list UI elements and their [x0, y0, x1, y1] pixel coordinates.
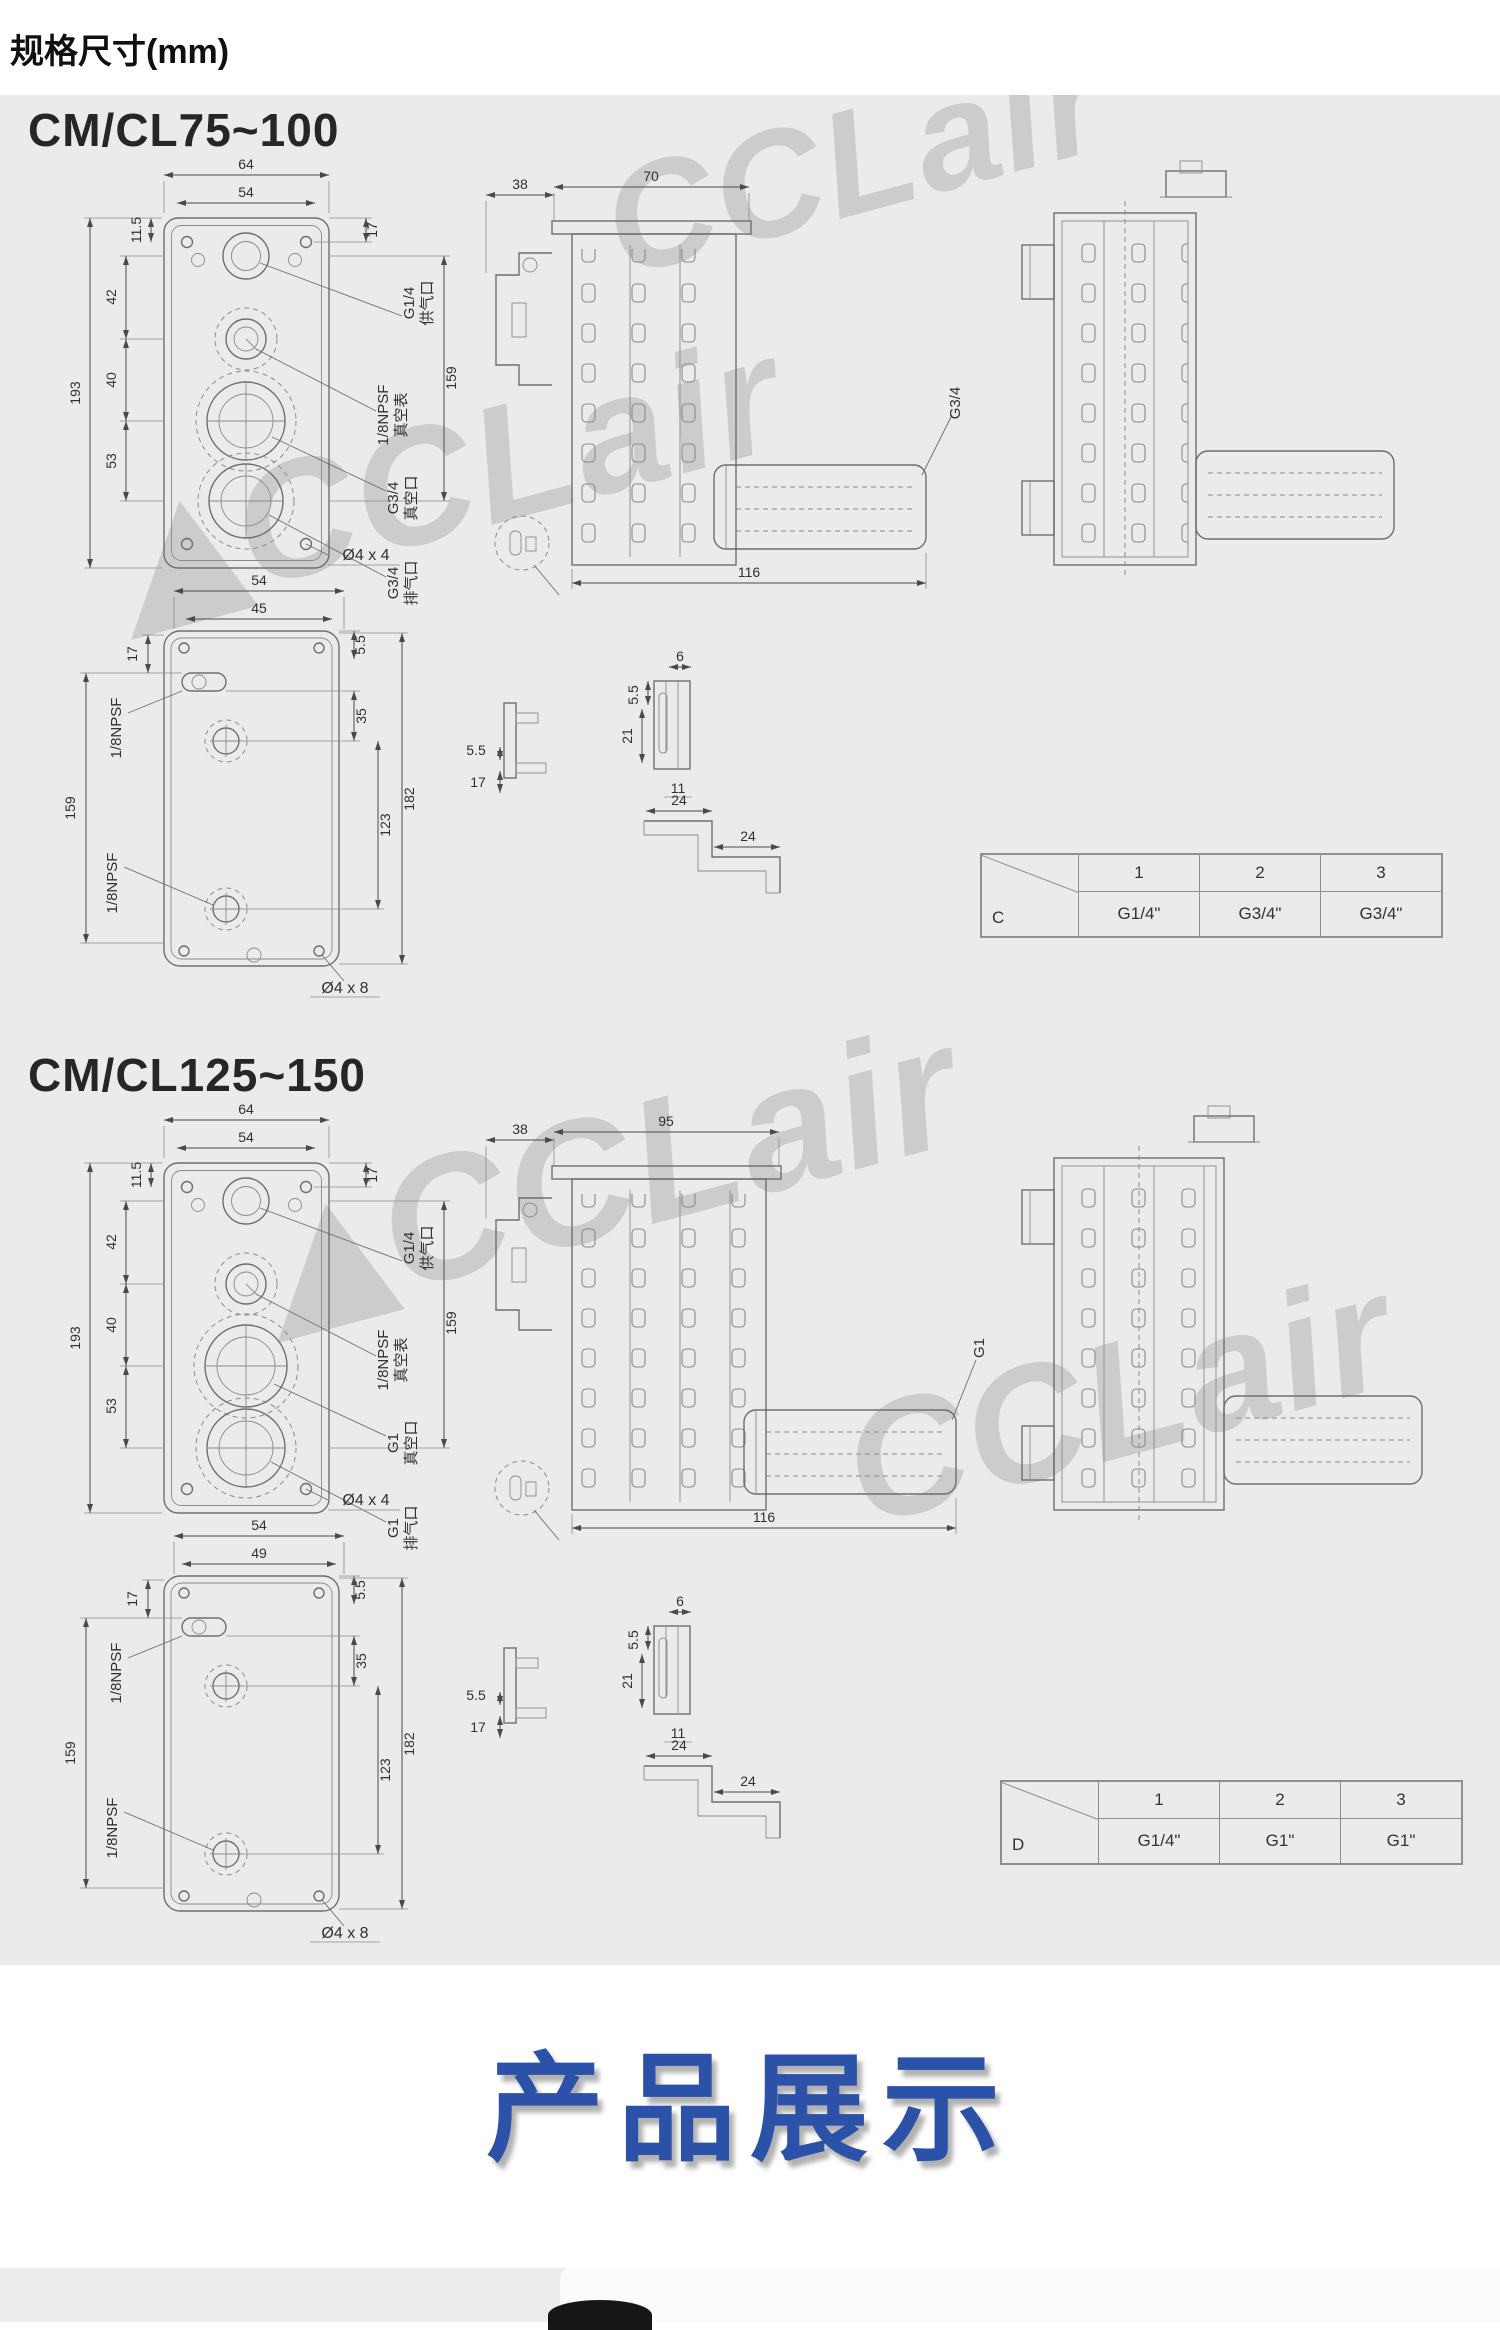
dim-label: 6 [676, 1593, 684, 1609]
port-label: 供气口 [419, 280, 436, 325]
dim-label: 17 [364, 222, 380, 238]
dim-label: 70 [643, 168, 659, 184]
side-view: 38 70 116 G3/4 [486, 168, 964, 595]
dim-label: 11.5 [128, 217, 144, 243]
dim-label: 35 [353, 708, 369, 724]
dim-label: 11.5 [128, 1162, 144, 1188]
dim-label: 159 [443, 1311, 459, 1335]
detail-profiles: 5.5 17 6 5.5 21 11 24 24 [466, 1593, 780, 1838]
dim-label: 193 [67, 1326, 83, 1350]
dim-label: 64 [238, 1101, 254, 1117]
port-label: 1/8NPSF [104, 1798, 121, 1859]
dim-label: 21 [619, 1673, 635, 1689]
dim-label: 193 [67, 381, 83, 405]
dim-label: 24 [740, 1773, 756, 1789]
section-heading: CM/CL125~150 [0, 1040, 1500, 1102]
muffler-port-label: G1 [971, 1338, 988, 1358]
port-label: 排气口 [403, 560, 420, 605]
dim-label: 24 [671, 1737, 687, 1753]
port-label: 1/8NPSF [375, 1330, 392, 1391]
port-label: 1/8NPSF [104, 853, 121, 914]
dim-label: 49 [251, 1545, 267, 1561]
table-col-header: 3 [1341, 1781, 1463, 1819]
dim-label: 21 [619, 728, 635, 744]
port-size-table: D 1 2 3 G1/4" G1" G1" [1000, 1780, 1463, 1865]
dim-label: 159 [62, 1741, 78, 1765]
holes-label: Ø4 x 8 [321, 980, 368, 997]
table-col-header: 3 [1321, 854, 1443, 892]
dim-label: 182 [401, 1732, 417, 1756]
section-cm-cl-75-100: CM/CL75~100 [0, 95, 1500, 1040]
port-label: G3/4 [385, 567, 402, 600]
dim-label: 38 [512, 1121, 528, 1137]
table-value: G1/4" [1079, 892, 1200, 938]
product-showcase-section: 产品展示 [0, 1965, 1500, 2265]
dim-label: 5.5 [466, 742, 486, 758]
dim-label: 95 [658, 1113, 674, 1129]
table-value: G3/4" [1200, 892, 1321, 938]
table-col-header: 1 [1099, 1781, 1220, 1819]
port-size-table: C 1 2 3 G1/4" G3/4" G3/4" [980, 853, 1443, 938]
dim-label: 17 [470, 1719, 486, 1735]
port-label: 真空表 [392, 392, 410, 437]
table-value: G1" [1220, 1819, 1341, 1865]
side-view: 38 95 116 G1 [486, 1113, 988, 1540]
dim-label: 123 [377, 813, 393, 837]
muffler-port-label: G3/4 [947, 387, 964, 420]
dim-label: 54 [238, 184, 254, 200]
dim-label: 182 [401, 787, 417, 811]
holes-label: Ø4 x 8 [321, 1925, 368, 1942]
port-label: G1/4 [401, 1232, 418, 1265]
product-photo-strip [0, 2268, 1500, 2322]
table-corner-label: C [992, 908, 1004, 928]
port-label: G1 [385, 1518, 402, 1538]
front-view: 64 54 11.5 42 40 53 193 17 159 G1/4 供气口 … [67, 156, 459, 606]
bottom-view: 54 45 17 159 5.5 35 123 182 1/8NPSF 1/8N… [62, 572, 417, 997]
dim-label: 54 [251, 572, 267, 588]
port-label: 真空表 [392, 1337, 410, 1382]
port-label: 1/8NPSF [108, 1643, 125, 1704]
dim-label: 42 [103, 289, 119, 305]
port-label: 真空口 [402, 475, 420, 520]
dim-label: 42 [103, 1234, 119, 1250]
dim-label: 116 [753, 1509, 776, 1525]
dim-label: 38 [512, 176, 528, 192]
dim-label: 5.5 [352, 1580, 368, 1600]
table-value: G1" [1341, 1819, 1463, 1865]
table-col-header: 2 [1220, 1781, 1341, 1819]
dim-label: 24 [671, 792, 687, 808]
table-corner-label: D [1012, 1835, 1024, 1855]
dim-label: 24 [740, 828, 756, 844]
page-title: 规格尺寸(mm) [0, 0, 1500, 73]
spec-panel: CCLair CCLair CCLair CCLair CM/CL75~100 [0, 95, 1500, 1965]
section-cm-cl-125-150: CM/CL125~150 [0, 1040, 1500, 1965]
dim-label: 123 [377, 1758, 393, 1782]
dim-label: 53 [103, 453, 119, 469]
port-label: 真空口 [402, 1420, 420, 1465]
dim-label: 17 [470, 774, 486, 790]
dim-label: 35 [353, 1653, 369, 1669]
dim-label: 5.5 [466, 1687, 486, 1703]
dim-label: 5.5 [352, 635, 368, 655]
table-col-header: 2 [1200, 854, 1321, 892]
dim-label: 5.5 [625, 685, 641, 705]
dim-label: 5.5 [625, 1630, 641, 1650]
dim-label: 54 [251, 1517, 267, 1533]
holes-label: Ø4 x 4 [342, 1492, 389, 1509]
table-value: G3/4" [1321, 892, 1443, 938]
dim-label: 53 [103, 1398, 119, 1414]
port-label: G1/4 [401, 287, 418, 320]
dim-label: 17 [124, 1591, 140, 1607]
dim-label: 116 [738, 564, 761, 580]
table-value: G1/4" [1099, 1819, 1220, 1865]
front-view: 64 54 11.5 42 40 53 193 17 159 G1/4 供气口 … [67, 1101, 459, 1551]
dim-label: 159 [443, 366, 459, 390]
dim-label: 17 [364, 1167, 380, 1183]
rear-view [1022, 1106, 1422, 1522]
port-label: G3/4 [385, 482, 402, 515]
dim-label: 6 [676, 648, 684, 664]
showcase-title: 产品展示 [0, 1965, 1500, 2184]
section-heading: CM/CL75~100 [0, 95, 1500, 157]
dim-label: 40 [103, 1317, 119, 1333]
port-label: 供气口 [419, 1225, 436, 1270]
detail-profiles: 5.5 17 6 5.5 21 11 24 24 [466, 648, 780, 893]
dim-label: 54 [238, 1129, 254, 1145]
dim-label: 17 [124, 646, 140, 662]
dim-label: 40 [103, 372, 119, 388]
rear-view [1022, 161, 1394, 577]
dim-label: 64 [238, 156, 254, 172]
holes-label: Ø4 x 4 [342, 547, 389, 564]
product-photo-top-edge [548, 2300, 652, 2330]
dim-label: 159 [62, 796, 78, 820]
bottom-view: 54 49 17 159 5.5 35 123 182 1/8NPSF 1/8N… [62, 1517, 417, 1942]
dim-label: 45 [251, 600, 267, 616]
port-label: 1/8NPSF [108, 698, 125, 759]
port-label: 排气口 [403, 1505, 420, 1550]
port-label: G1 [385, 1433, 402, 1453]
photo-background [560, 2268, 1500, 2322]
port-label: 1/8NPSF [375, 385, 392, 446]
table-col-header: 1 [1079, 854, 1200, 892]
